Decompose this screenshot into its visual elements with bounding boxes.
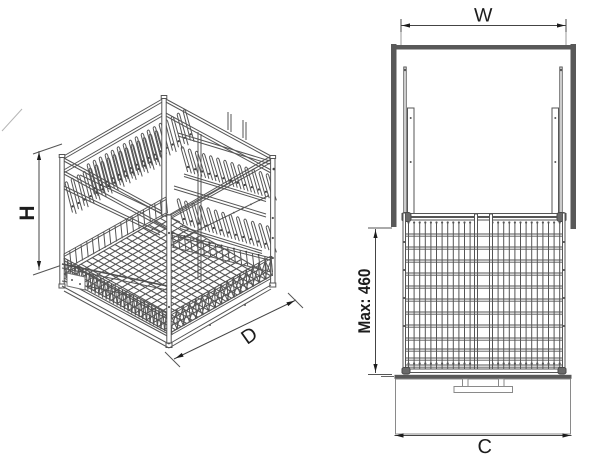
svg-text:C: C <box>477 436 491 458</box>
svg-text:H: H <box>16 205 39 220</box>
svg-text:W: W <box>474 5 493 27</box>
svg-text:Max: 460: Max: 460 <box>355 269 374 334</box>
